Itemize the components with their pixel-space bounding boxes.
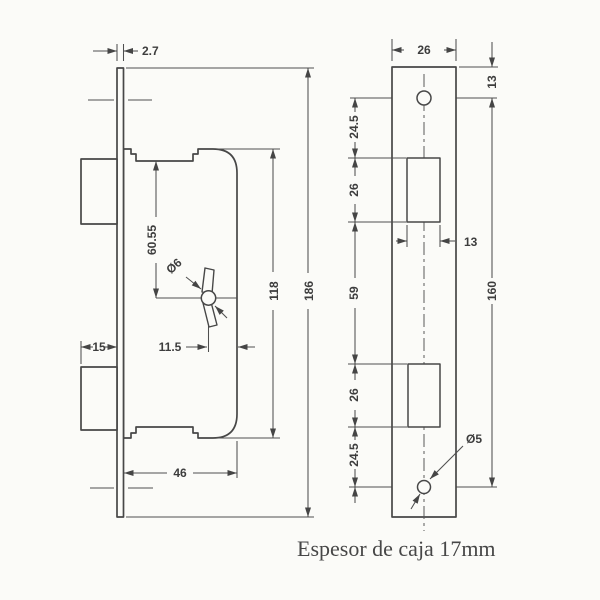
- faceplate-side: [117, 68, 124, 517]
- dim-top-to-screw: 13: [485, 75, 499, 89]
- spindle-hub: [201, 291, 215, 305]
- front-view: 26 13 160: [347, 39, 499, 531]
- dim-plate-width: 26: [417, 43, 431, 57]
- lock-drawing: 2.7 186 118 60.55 Ø6: [0, 0, 600, 600]
- dim-bolt-protrusion: 15: [92, 340, 106, 354]
- dim-group-faceplate-thickness: 2.7: [93, 44, 159, 61]
- dim-group-screw-spacing: 160: [485, 98, 499, 487]
- side-view: 2.7 186 118 60.55 Ø6: [81, 44, 316, 517]
- dim-screw-to-hole: 24.5: [347, 115, 361, 139]
- dim-group-case-depth: 46: [124, 441, 237, 480]
- dim-case-height: 118: [267, 281, 281, 301]
- dim-screw-spacing: 160: [485, 281, 499, 301]
- caption-text: Espesor de caja 17mm: [297, 536, 496, 561]
- screw-hole-bottom: [418, 481, 431, 494]
- dim-hole-to-screw: 24.5: [347, 443, 361, 467]
- dim-screw-diameter: Ø5: [466, 432, 482, 446]
- screw-hole-top: [417, 91, 431, 105]
- dim-total-height: 186: [302, 281, 316, 301]
- deadbolt-opening: [408, 364, 440, 427]
- dim-faceplate-thickness: 2.7: [142, 44, 159, 58]
- latch-bolt: [81, 159, 117, 224]
- lock-case-outline: [124, 149, 238, 438]
- dim-group-plate-width: 26: [392, 39, 456, 61]
- dim-spindle-to-edge: 11.5: [159, 340, 182, 354]
- dim-lower-hole-height: 26: [347, 388, 361, 402]
- dim-upper-hole-height: 26: [347, 183, 361, 197]
- dim-top-to-spindle: 60.55: [145, 225, 159, 255]
- dim-group-top-to-screw: 13: [459, 42, 499, 89]
- deadbolt: [81, 367, 117, 430]
- latch-opening: [407, 158, 440, 222]
- technical-drawing-sheet: 2.7 186 118 60.55 Ø6: [0, 0, 600, 600]
- dim-between-holes: 59: [347, 286, 361, 300]
- dim-group-bolt-protrusion: 15: [81, 340, 117, 364]
- dim-hole-width: 13: [464, 235, 478, 249]
- dim-case-depth: 46: [173, 466, 187, 480]
